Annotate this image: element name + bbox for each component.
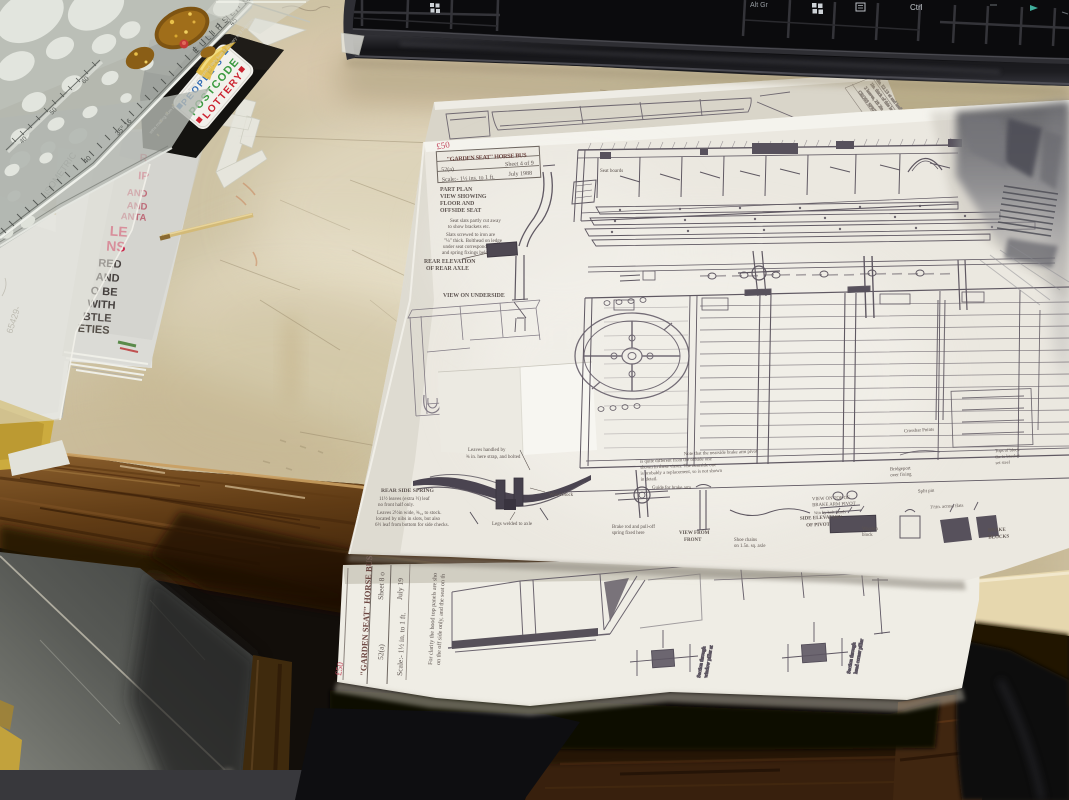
- svg-text:OFFSIDE SEAT: OFFSIDE SEAT: [440, 208, 481, 214]
- svg-text:VIEW ON UNDERSIDE: VIEW ON UNDERSIDE: [443, 293, 505, 299]
- svg-text:Legs welded to axle: Legs welded to axle: [492, 522, 533, 527]
- svg-text:no front half only.: no front half only.: [378, 503, 414, 508]
- svg-text:set steel: set steel: [995, 459, 1010, 465]
- svg-text:PART PLAN: PART PLAN: [440, 187, 473, 193]
- svg-text:Wooden: Wooden: [862, 527, 878, 532]
- svg-text:11½ leaves (extra ½) leaf: 11½ leaves (extra ½) leaf: [379, 497, 430, 502]
- svg-text:VIEW SHOWING: VIEW SHOWING: [440, 194, 487, 200]
- svg-text:FLOOR AND: FLOOR AND: [440, 201, 474, 207]
- svg-text:Brake rod and pull-off: Brake rod and pull-off: [612, 525, 655, 530]
- svg-text:Wood block: Wood block: [549, 493, 574, 498]
- svg-text:Split pin: Split pin: [918, 489, 935, 495]
- svg-text:VIEW FROM: VIEW FROM: [679, 531, 710, 536]
- svg-text:52(a): 52(a): [441, 166, 454, 174]
- svg-text:spring fixed here: spring fixed here: [612, 531, 645, 536]
- svg-text:REAR SIDE SPRING: REAR SIDE SPRING: [381, 488, 434, 494]
- svg-text:¾ in. here strap, and bolted: ¾ in. here strap, and bolted: [466, 455, 521, 460]
- svg-text:on 1.5n. sq. axle: on 1.5n. sq. axle: [734, 544, 765, 549]
- svg-text:block: block: [862, 533, 873, 538]
- svg-text:OF REAR AXLE: OF REAR AXLE: [426, 266, 469, 272]
- svg-text:Ctrl: Ctrl: [910, 3, 923, 12]
- svg-text:BRAKE: BRAKE: [988, 528, 1007, 534]
- svg-text:ETIES: ETIES: [77, 323, 110, 337]
- svg-text:REAR ELEVATION: REAR ELEVATION: [424, 259, 476, 265]
- svg-text:Seat slats partly cut away: Seat slats partly cut away: [450, 219, 501, 224]
- svg-text:6½ leaf from bottom for side c: 6½ leaf from bottom for side checks.: [375, 523, 449, 528]
- svg-text:July 19: July 19: [395, 578, 405, 601]
- svg-text:Leaves 2½in wide, ¾₁₆ to stock: Leaves 2½in wide, ¾₁₆ to stock.: [377, 511, 441, 516]
- svg-text:Slats screwed to iron are: Slats screwed to iron are: [446, 233, 496, 238]
- svg-text:to show brackets etc.: to show brackets etc.: [448, 225, 490, 230]
- svg-text:Seat boards: Seat boards: [600, 169, 623, 174]
- svg-text:Alt Gr: Alt Gr: [750, 2, 769, 9]
- svg-text:OF PIVOT: OF PIVOT: [806, 523, 831, 529]
- svg-text:Leaves handled by: Leaves handled by: [468, 448, 506, 453]
- svg-text:Sheet 8 o: Sheet 8 o: [376, 572, 386, 601]
- svg-text:Guide for brake arm: Guide for brake arm: [652, 486, 691, 491]
- svg-text:located by nibs in slots, but: located by nibs in slots, but also: [376, 517, 441, 522]
- svg-text:in detail.: in detail.: [641, 477, 658, 483]
- svg-text:52(a): 52(a): [376, 643, 386, 660]
- svg-text:July 1988: July 1988: [508, 171, 532, 178]
- svg-text:Shoe chains: Shoe chains: [734, 538, 757, 543]
- svg-text:FRONT: FRONT: [684, 538, 702, 543]
